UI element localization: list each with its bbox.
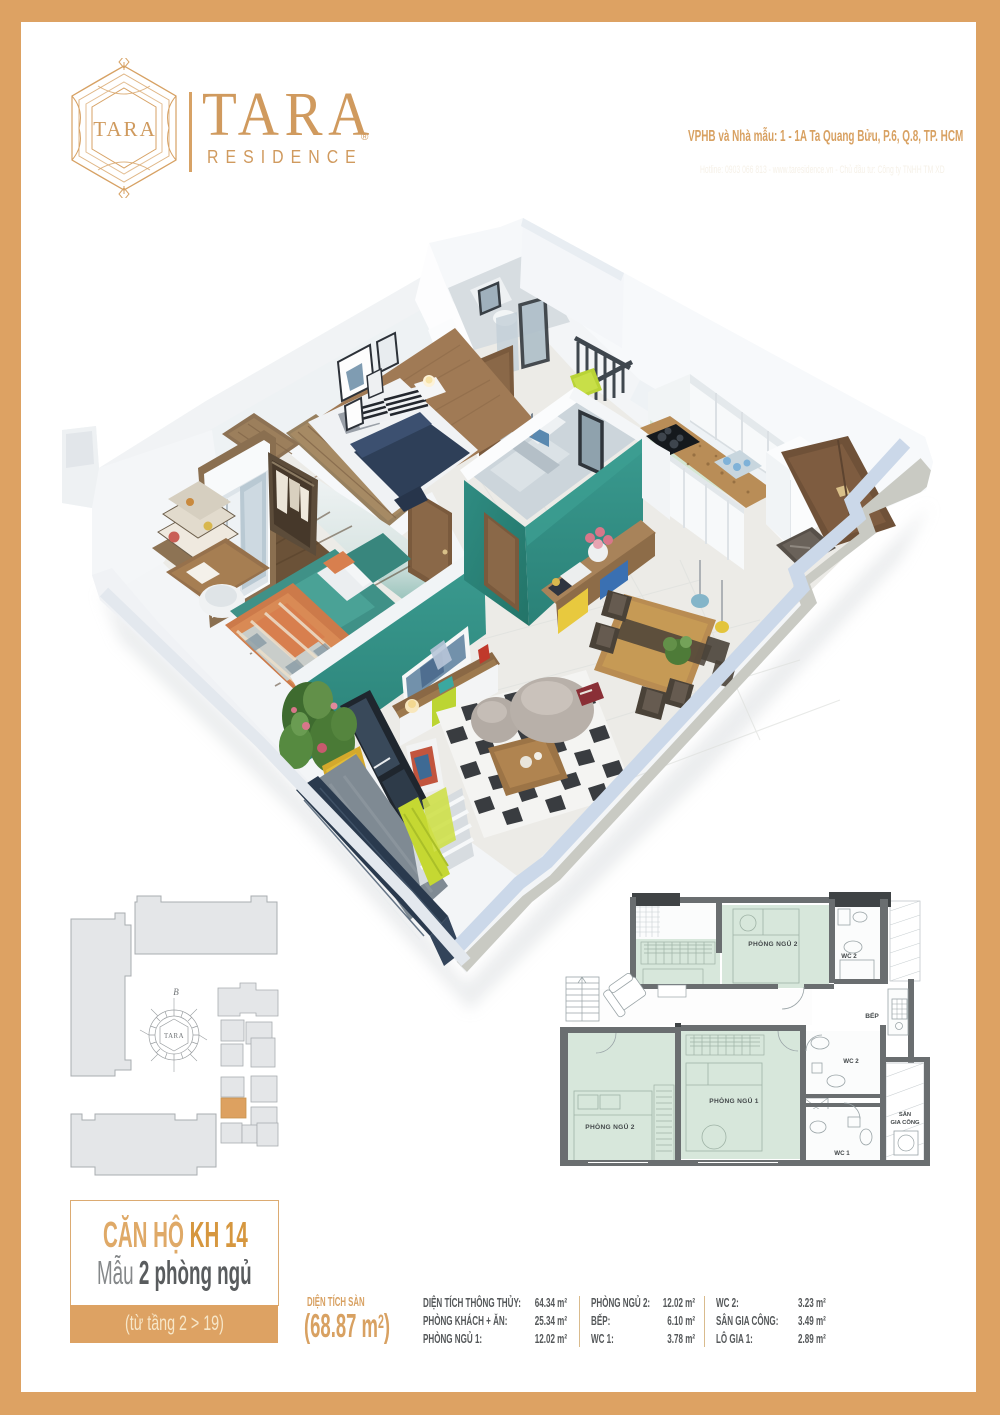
svg-text:GIA CÔNG: GIA CÔNG — [890, 1118, 920, 1126]
svg-text:PHÒNG NGỦ 2: PHÒNG NGỦ 2 — [748, 939, 797, 948]
svg-text:WC 2: WC 2 — [843, 1058, 859, 1065]
svg-text:PHÒNG NGỦ 2: PHÒNG NGỦ 2 — [585, 1122, 634, 1131]
svg-text:PHÒNG NGỦ 1: PHÒNG NGỦ 1 — [709, 1096, 758, 1105]
svg-text:B: B — [173, 987, 179, 997]
svg-text:WC 2: WC 2 — [841, 953, 857, 960]
svg-text:SÂN: SÂN — [899, 1111, 911, 1118]
svg-text:TARA: TARA — [164, 1033, 184, 1040]
svg-text:BẾP: BẾP — [865, 1010, 879, 1020]
svg-text:WC 1: WC 1 — [834, 1150, 850, 1157]
